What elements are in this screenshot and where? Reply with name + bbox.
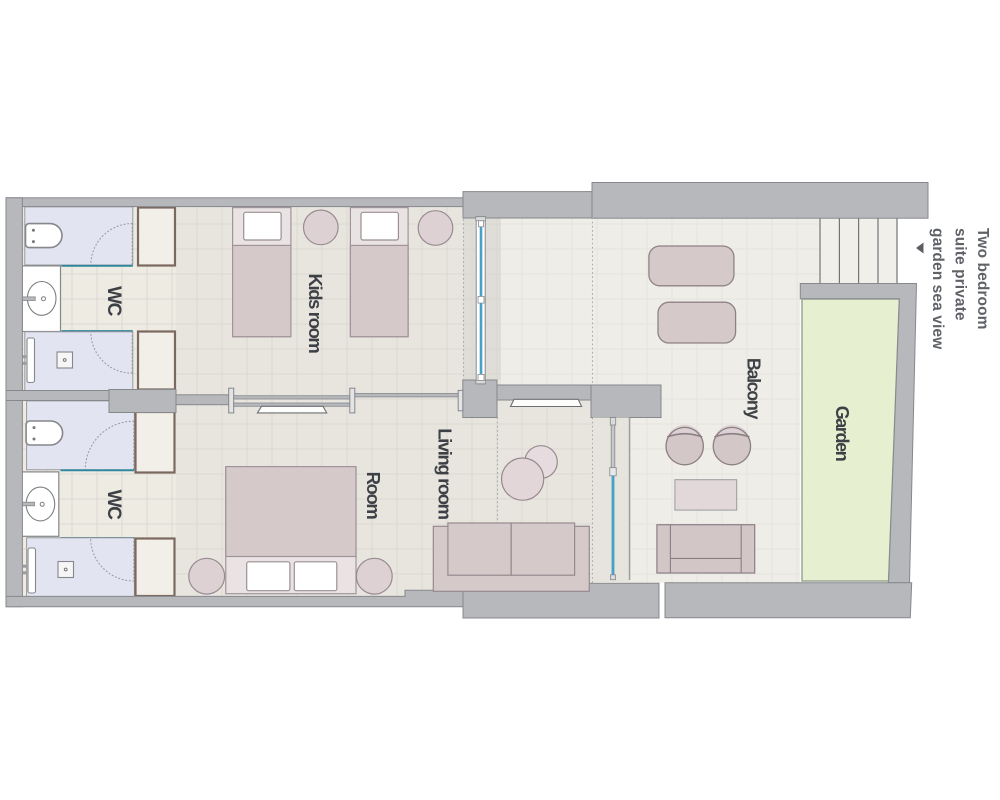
svg-text:WC: WC bbox=[103, 286, 124, 317]
svg-text:Two bedroom: Two bedroom bbox=[974, 228, 991, 330]
svg-text:WC: WC bbox=[103, 490, 124, 521]
svg-text:Garden: Garden bbox=[832, 406, 852, 461]
svg-text:Balcony: Balcony bbox=[744, 358, 764, 420]
svg-text:Kids room: Kids room bbox=[305, 274, 326, 354]
svg-text:Living room: Living room bbox=[435, 428, 456, 519]
svg-text:garden sea view: garden sea view bbox=[929, 228, 946, 350]
svg-text:Room: Room bbox=[363, 472, 384, 520]
svg-text:suite private: suite private bbox=[952, 228, 969, 321]
